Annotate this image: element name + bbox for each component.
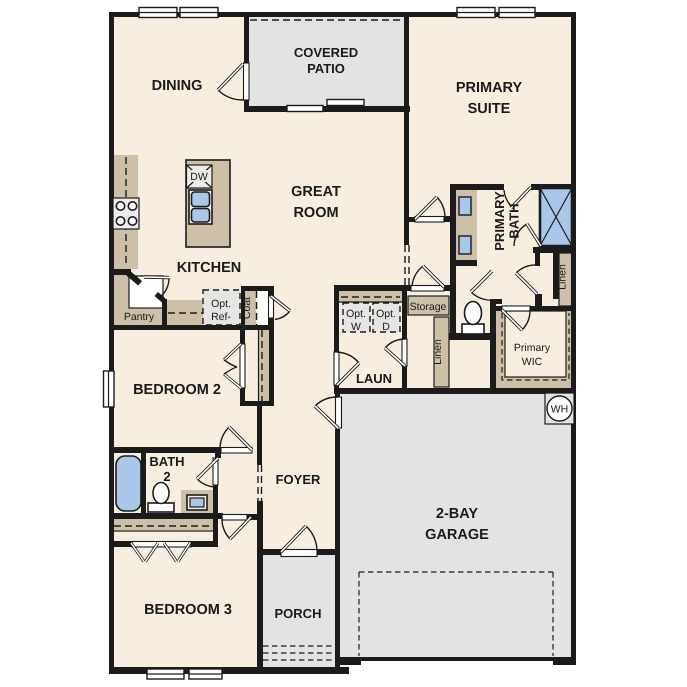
svg-text:PRIMARY: PRIMARY: [492, 191, 507, 251]
svg-text:DINING: DINING: [152, 78, 203, 94]
svg-text:PRIMARY: PRIMARY: [456, 80, 523, 96]
svg-text:2-BAY: 2-BAY: [436, 506, 479, 522]
svg-text:FOYER: FOYER: [276, 472, 321, 487]
svg-text:Linen: Linen: [432, 339, 444, 365]
svg-text:Opt.: Opt.: [346, 308, 366, 320]
svg-text:W: W: [351, 321, 361, 333]
svg-text:BEDROOM 2: BEDROOM 2: [133, 382, 221, 398]
svg-text:WIC: WIC: [522, 356, 543, 368]
svg-text:Coat: Coat: [241, 297, 253, 319]
svg-text:GARAGE: GARAGE: [425, 527, 489, 543]
svg-text:Storage: Storage: [410, 301, 447, 313]
svg-text:BATH: BATH: [149, 454, 184, 469]
svg-text:PATIO: PATIO: [307, 61, 345, 76]
svg-text:ROOM: ROOM: [293, 205, 338, 221]
svg-text:GREAT: GREAT: [291, 184, 341, 200]
svg-text:BEDROOM 3: BEDROOM 3: [144, 602, 232, 618]
svg-text:Linen: Linen: [557, 264, 569, 290]
svg-text:Primary: Primary: [514, 342, 551, 354]
svg-text:Opt.: Opt.: [211, 298, 231, 310]
svg-text:LAUN: LAUN: [356, 371, 392, 386]
svg-text:PORCH: PORCH: [275, 606, 322, 621]
svg-text:Opt.: Opt.: [376, 308, 396, 320]
svg-text:KITCHEN: KITCHEN: [177, 260, 241, 276]
svg-text:WH: WH: [551, 404, 569, 416]
svg-text:COVERED: COVERED: [294, 45, 358, 60]
svg-text:BATH: BATH: [507, 203, 522, 238]
svg-text:D: D: [382, 321, 390, 333]
svg-text:DW: DW: [190, 171, 208, 183]
svg-text:2: 2: [163, 469, 170, 484]
svg-text:Ref-: Ref-: [211, 311, 231, 323]
svg-text:Pantry: Pantry: [124, 311, 155, 323]
svg-text:SUITE: SUITE: [468, 101, 511, 117]
